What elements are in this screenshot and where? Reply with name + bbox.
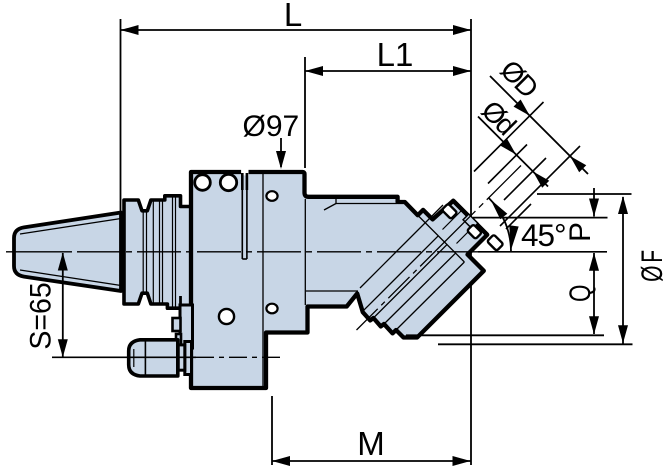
svg-text:Ø97: Ø97 — [243, 110, 300, 143]
svg-text:L: L — [284, 0, 302, 33]
svg-text:Q: Q — [563, 284, 597, 302]
svg-text:45°: 45° — [521, 217, 566, 253]
svg-text:P: P — [564, 222, 597, 242]
svg-text:S=65: S=65 — [25, 282, 58, 349]
svg-text:M: M — [357, 425, 385, 462]
svg-text:L1: L1 — [377, 36, 414, 73]
svg-text:ØF: ØF — [637, 247, 668, 282]
